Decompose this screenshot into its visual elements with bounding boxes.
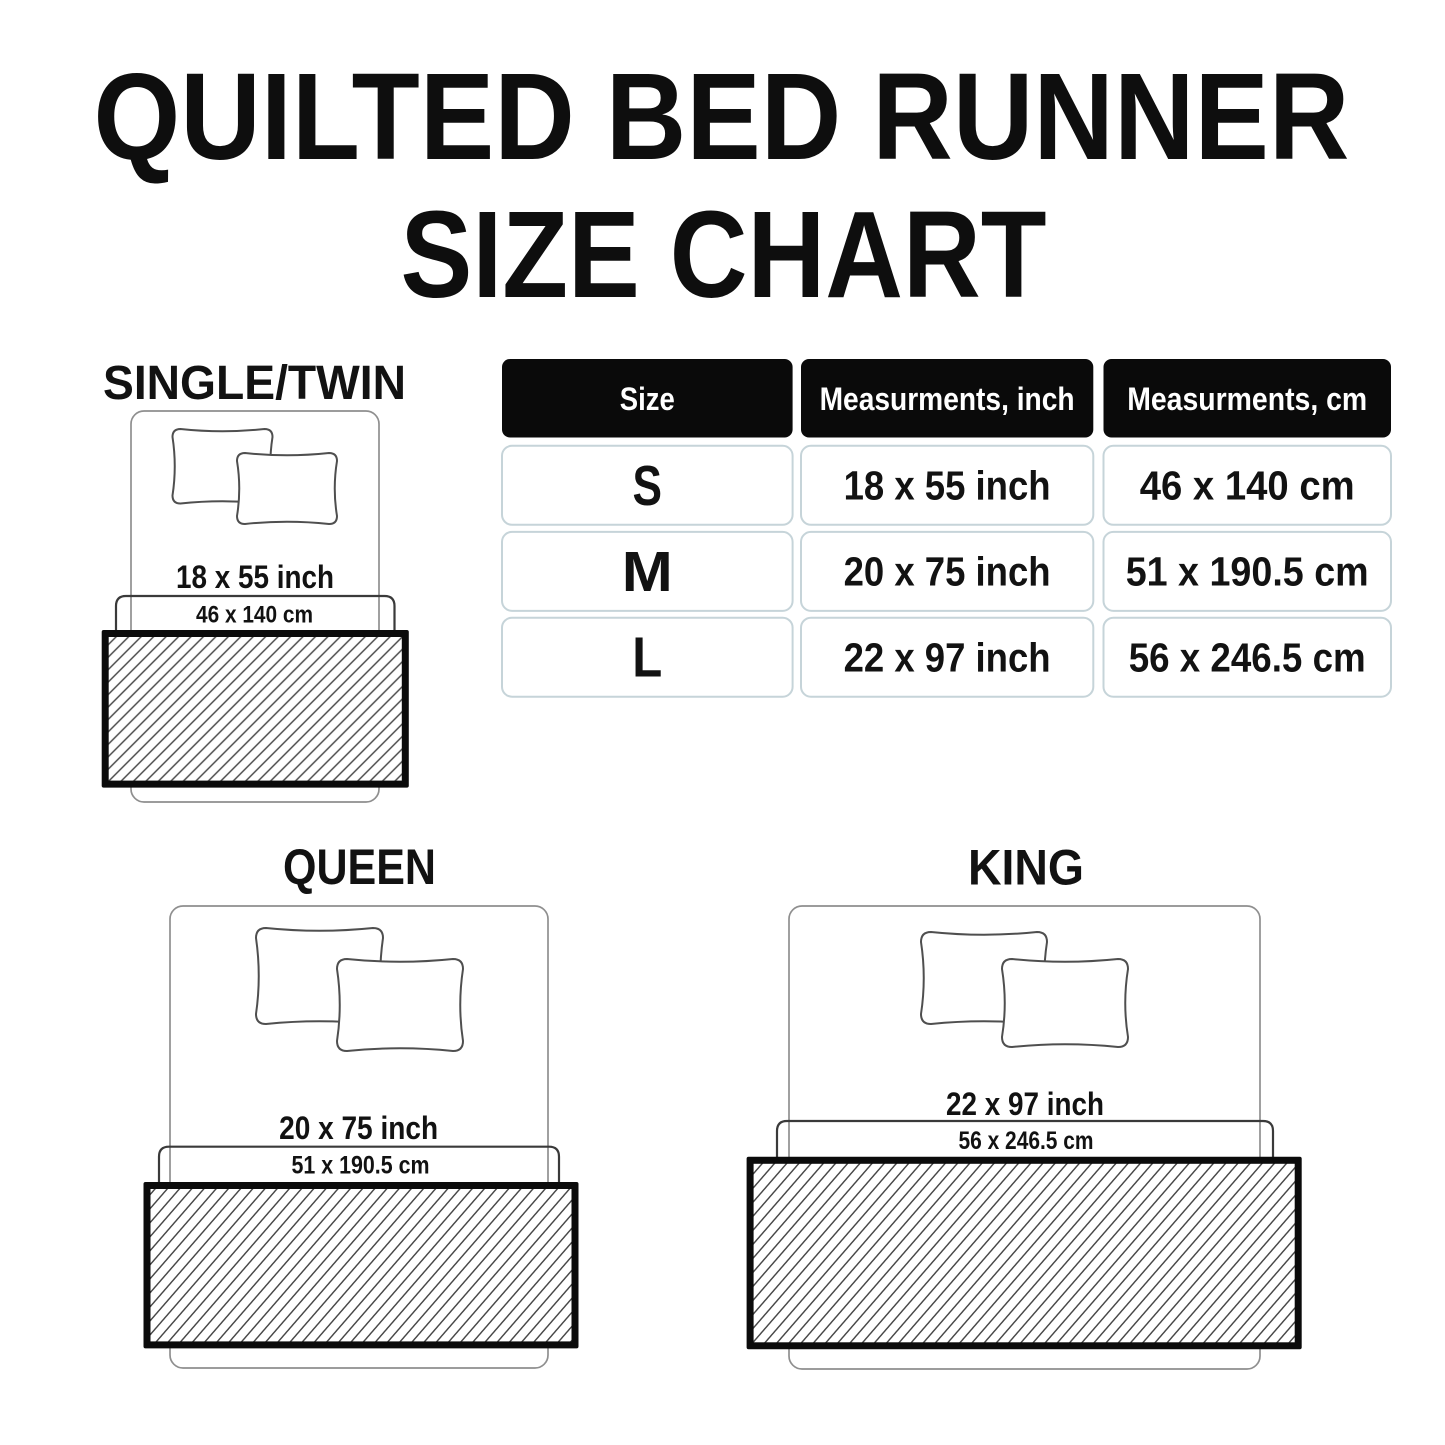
- svg-text:S: S: [633, 454, 663, 518]
- svg-text:51 x 190.5 cm: 51 x 190.5 cm: [292, 1151, 430, 1179]
- svg-text:22 x 97 inch: 22 x 97 inch: [844, 635, 1051, 681]
- svg-text:46 x 140 cm: 46 x 140 cm: [196, 601, 313, 628]
- svg-text:QUEEN: QUEEN: [283, 839, 436, 895]
- svg-text:L: L: [632, 626, 662, 690]
- svg-text:QUILTED BED RUNNER: QUILTED BED RUNNER: [94, 49, 1350, 186]
- svg-text:Measurments, inch: Measurments, inch: [820, 381, 1075, 417]
- svg-text:SINGLE/TWIN: SINGLE/TWIN: [103, 357, 406, 410]
- svg-text:51 x 190.5 cm: 51 x 190.5 cm: [1126, 549, 1369, 595]
- svg-text:M: M: [622, 540, 673, 604]
- svg-text:22 x 97 inch: 22 x 97 inch: [946, 1086, 1104, 1122]
- svg-text:SIZE CHART: SIZE CHART: [401, 187, 1047, 324]
- svg-text:Size: Size: [620, 381, 675, 417]
- svg-text:Measurments, cm: Measurments, cm: [1127, 381, 1367, 417]
- svg-text:18 x 55 inch: 18 x 55 inch: [844, 463, 1051, 509]
- svg-text:56 x 246.5 cm: 56 x 246.5 cm: [959, 1127, 1094, 1155]
- svg-text:20 x 75 inch: 20 x 75 inch: [279, 1110, 438, 1146]
- svg-text:20 x 75 inch: 20 x 75 inch: [844, 549, 1051, 595]
- svg-text:56 x 246.5 cm: 56 x 246.5 cm: [1129, 635, 1366, 681]
- svg-text:18 x 55 inch: 18 x 55 inch: [176, 559, 334, 595]
- svg-text:KING: KING: [968, 840, 1084, 896]
- svg-text:46 x 140 cm: 46 x 140 cm: [1140, 463, 1355, 509]
